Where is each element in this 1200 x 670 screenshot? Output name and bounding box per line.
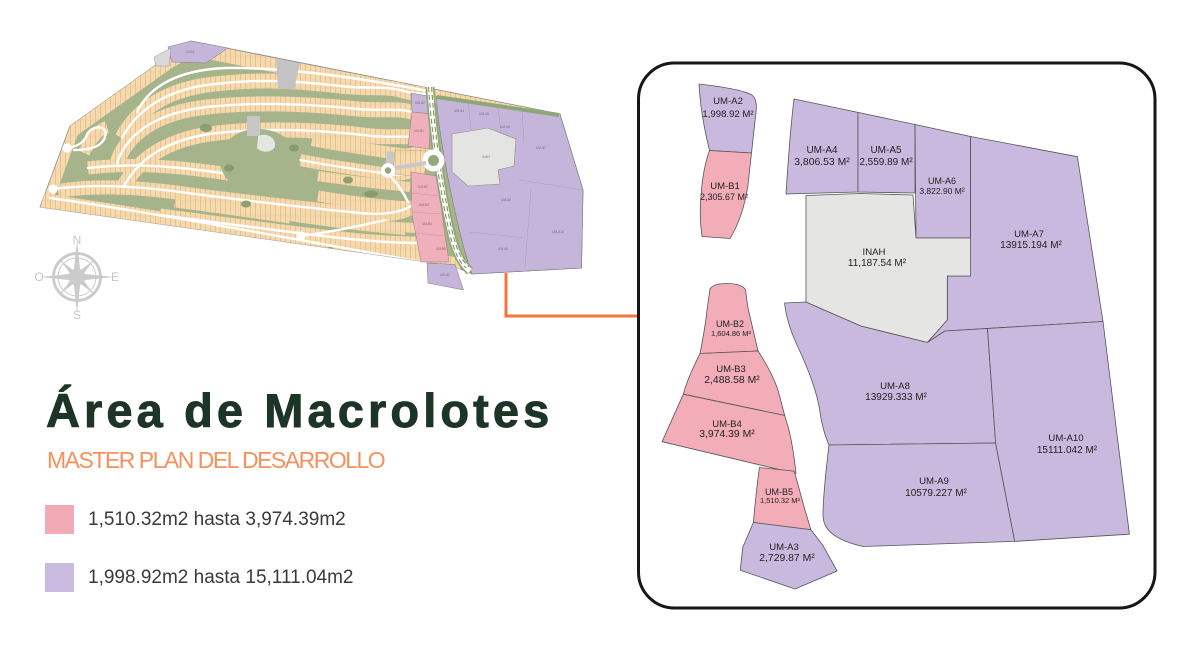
svg-text:2,488.58 M²: 2,488.58 M²	[704, 375, 760, 386]
svg-text:15111.042 M²: 15111.042 M²	[1037, 445, 1098, 456]
svg-text:2,305.67 M²: 2,305.67 M²	[700, 192, 748, 202]
svg-text:UM-A6: UM-A6	[500, 125, 510, 129]
svg-text:UM-A9: UM-A9	[498, 247, 508, 251]
svg-text:UM-B3: UM-B3	[716, 364, 746, 375]
svg-text:UM-A10: UM-A10	[1048, 433, 1083, 444]
svg-text:UM-B5: UM-B5	[436, 247, 446, 251]
svg-text:S: S	[73, 308, 81, 322]
svg-text:1,510.32 M²: 1,510.32 M²	[760, 496, 801, 505]
svg-text:UM-A5: UM-A5	[479, 112, 489, 116]
svg-text:UM-A3: UM-A3	[769, 542, 799, 553]
svg-text:1,998.92 M²: 1,998.92 M²	[702, 109, 754, 120]
svg-text:13929.333 M²: 13929.333 M²	[865, 392, 927, 403]
svg-text:UM-B1: UM-B1	[414, 129, 424, 133]
svg-text:INAH: INAH	[482, 155, 490, 159]
svg-text:UM-A9: UM-A9	[919, 476, 949, 487]
svg-text:N: N	[73, 233, 82, 247]
svg-text:2,729.87 M²: 2,729.87 M²	[759, 553, 815, 564]
svg-text:UM-A2: UM-A2	[415, 101, 425, 105]
svg-text:UM-B1: UM-B1	[710, 181, 740, 192]
svg-text:UM-B2: UM-B2	[716, 319, 744, 329]
svg-text:UM-A7: UM-A7	[536, 146, 546, 150]
svg-text:3,822.90 M²: 3,822.90 M²	[919, 186, 965, 196]
svg-text:3,974.39 M²: 3,974.39 M²	[699, 429, 755, 440]
svg-text:UM-A7: UM-A7	[1014, 229, 1044, 240]
svg-text:UM-A5: UM-A5	[870, 145, 902, 156]
svg-text:3,806.53 M²: 3,806.53 M²	[794, 157, 850, 168]
svg-text:UM-A2: UM-A2	[713, 96, 743, 107]
svg-text:UM-B3: UM-B3	[419, 203, 429, 207]
svg-text:INAH: INAH	[863, 247, 886, 258]
svg-text:1,604.86 M²: 1,604.86 M²	[711, 329, 752, 338]
svg-text:UM-A4: UM-A4	[806, 145, 838, 156]
svg-text:UM-B2: UM-B2	[418, 185, 428, 189]
svg-text:UM-A4: UM-A4	[454, 109, 464, 113]
svg-text:13915.194 M²: 13915.194 M²	[1000, 240, 1062, 251]
svg-text:10579.227 M²: 10579.227 M²	[905, 488, 967, 499]
svg-text:UM-A10: UM-A10	[552, 230, 564, 234]
svg-text:CASA: CASA	[186, 50, 196, 54]
svg-text:E: E	[111, 270, 119, 284]
svg-text:UM-A3: UM-A3	[440, 273, 450, 277]
svg-text:UM-A8: UM-A8	[501, 198, 511, 202]
svg-text:2,559.89 M²: 2,559.89 M²	[859, 157, 913, 168]
svg-text:UM-A8: UM-A8	[880, 381, 910, 392]
svg-text:UM-A6: UM-A6	[928, 176, 956, 186]
svg-text:O: O	[34, 270, 43, 284]
svg-text:11,187.54 M²: 11,187.54 M²	[848, 258, 907, 269]
svg-text:UM-B4: UM-B4	[422, 222, 432, 226]
